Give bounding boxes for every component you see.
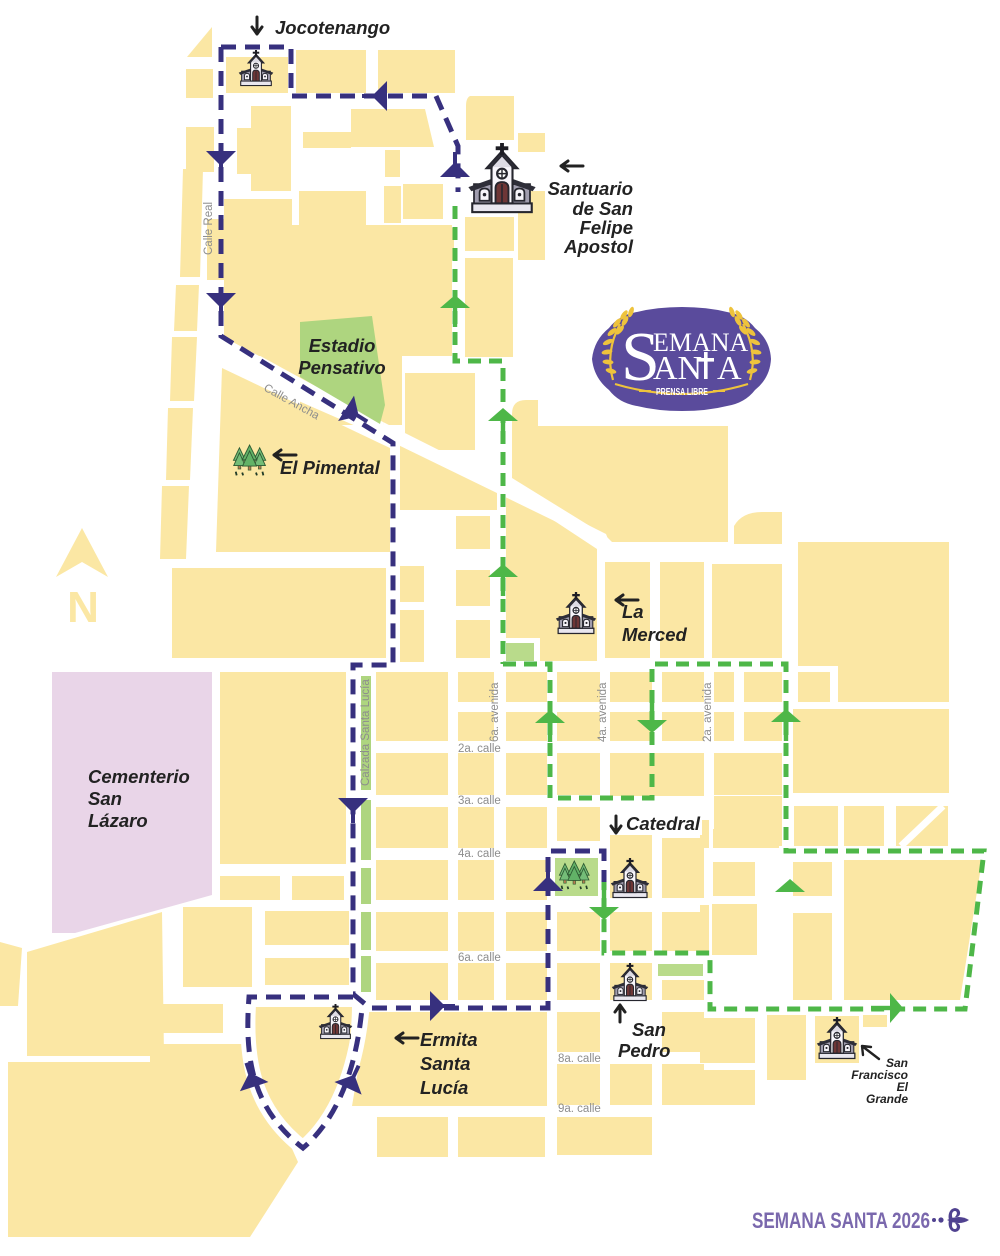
svg-text:AN: AN (653, 350, 702, 387)
svg-text:3a. calle: 3a. calle (458, 795, 501, 807)
svg-text:6a. calle: 6a. calle (458, 952, 501, 964)
svg-text:2a. calle: 2a. calle (458, 743, 501, 755)
svg-text:Grande: Grande (866, 1092, 908, 1106)
svg-text:6a. avenida: 6a. avenida (489, 682, 501, 742)
svg-text:Lázaro: Lázaro (88, 810, 148, 831)
svg-text:San: San (88, 788, 122, 809)
svg-text:8a. calle: 8a. calle (558, 1053, 601, 1065)
svg-text:San: San (632, 1019, 666, 1040)
svg-text:La: La (622, 601, 644, 622)
svg-text:PRENSA LIBRE: PRENSA LIBRE (656, 387, 708, 398)
svg-text:4a. calle: 4a. calle (458, 848, 501, 860)
svg-text:Ermita: Ermita (420, 1029, 478, 1050)
svg-text:Merced: Merced (622, 624, 687, 645)
svg-text:Estadio: Estadio (309, 335, 376, 356)
svg-text:Lucía: Lucía (420, 1077, 468, 1098)
svg-text:de San: de San (572, 198, 633, 219)
svg-text:Catedral: Catedral (626, 813, 701, 834)
svg-text:Felipe: Felipe (580, 217, 633, 238)
svg-text:Calzada Santa Lucía: Calzada Santa Lucía (360, 679, 372, 786)
svg-text:Pedro: Pedro (618, 1040, 670, 1061)
svg-text:Jocotenango: Jocotenango (275, 17, 390, 38)
svg-text:2a. avenida: 2a. avenida (702, 682, 714, 742)
svg-text:A: A (717, 350, 742, 387)
svg-text:Calle Real: Calle Real (203, 202, 215, 255)
svg-text:N: N (67, 583, 99, 632)
svg-text:Apostol: Apostol (563, 236, 634, 257)
svg-text:9a. calle: 9a. calle (558, 1103, 601, 1115)
svg-text:Cementerio: Cementerio (88, 766, 190, 787)
svg-text:Santuario: Santuario (548, 178, 633, 199)
svg-text:SEMANA SANTA 2026: SEMANA SANTA 2026 (752, 1208, 930, 1233)
svg-text:Pensativo: Pensativo (298, 357, 385, 378)
svg-text:El Pimental: El Pimental (280, 457, 381, 478)
svg-text:4a. avenida: 4a. avenida (597, 682, 609, 742)
svg-text:Santa: Santa (420, 1053, 470, 1074)
